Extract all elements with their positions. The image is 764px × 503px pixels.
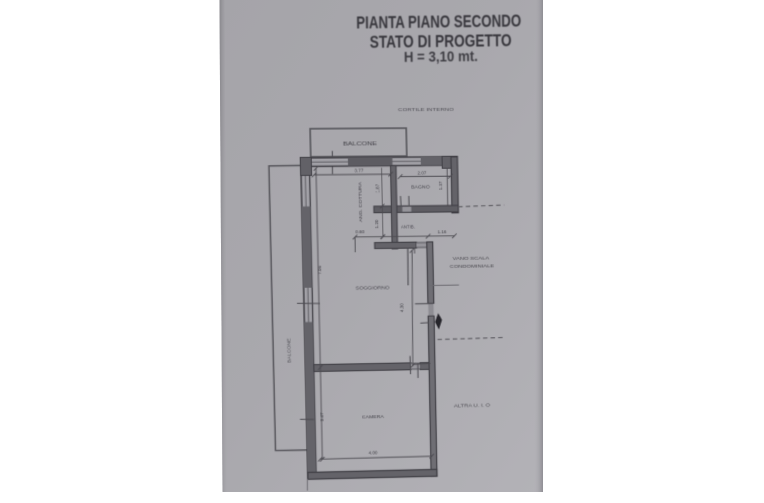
svg-text:1.20: 1.20 <box>374 219 379 228</box>
svg-text:ALTRA U. I. O: ALTRA U. I. O <box>454 403 490 409</box>
svg-text:ANTIB.: ANTIB. <box>401 224 415 229</box>
svg-text:ANG. COTTURA: ANG. COTTURA <box>358 182 364 222</box>
svg-text:CAMERA: CAMERA <box>362 414 385 419</box>
svg-text:4.30: 4.30 <box>399 303 404 312</box>
svg-text:3.47: 3.47 <box>320 412 325 421</box>
svg-text:3.77: 3.77 <box>355 168 364 173</box>
svg-text:1.37: 1.37 <box>438 181 443 190</box>
svg-text:BALCONE: BALCONE <box>286 338 291 363</box>
svg-text:0.60: 0.60 <box>356 230 365 235</box>
svg-text:1.16: 1.16 <box>438 229 447 234</box>
svg-text:SOGGIORNO: SOGGIORNO <box>356 285 390 290</box>
svg-text:7.06: 7.06 <box>317 265 322 274</box>
svg-text:BALCONE: BALCONE <box>343 141 377 147</box>
svg-text:CONDOMINIALE: CONDOMINIALE <box>450 263 495 269</box>
svg-text:2.07: 2.07 <box>418 170 427 175</box>
svg-text:BAGNO: BAGNO <box>411 184 430 189</box>
svg-text:CORTILE INTERNO: CORTILE INTERNO <box>398 107 454 113</box>
svg-text:1.87: 1.87 <box>375 184 380 193</box>
svg-text:4.00: 4.00 <box>369 450 378 455</box>
svg-text:VANO SCALA: VANO SCALA <box>453 256 490 262</box>
